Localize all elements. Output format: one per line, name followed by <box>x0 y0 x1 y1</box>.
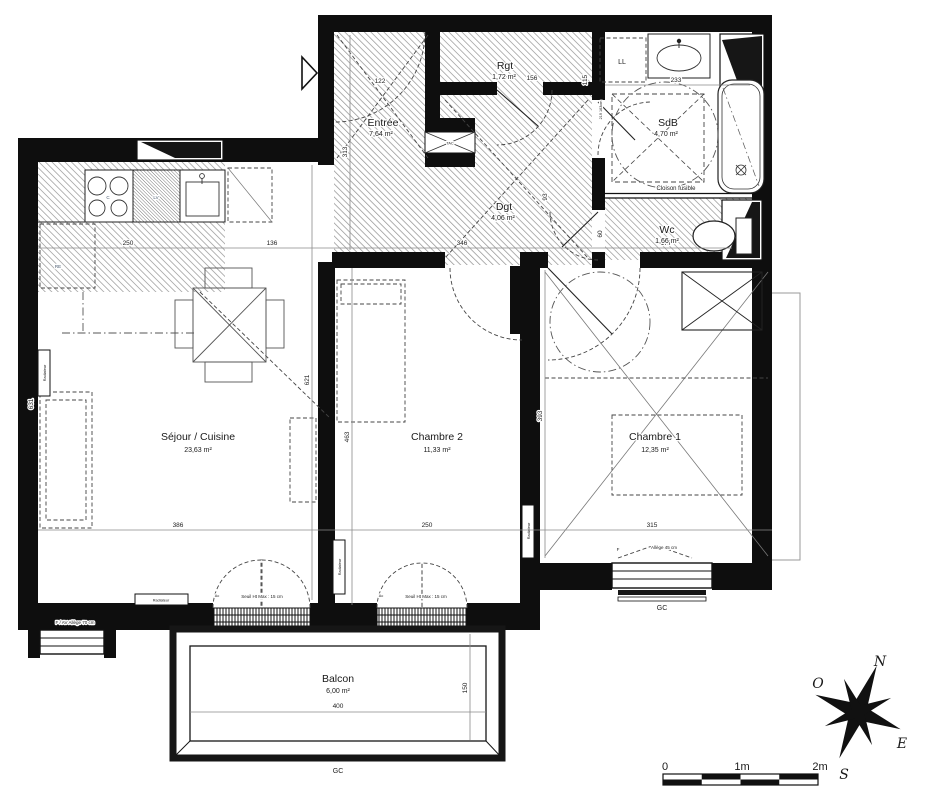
room-balcon-name: Balcon <box>322 673 354 685</box>
bathtub <box>718 80 764 193</box>
dim-sejour-height: 621 <box>304 374 311 385</box>
duct-top-left <box>137 140 223 160</box>
scale-1m: 1m <box>734 761 749 773</box>
balcony-door1-left <box>213 560 261 608</box>
dim-left-height: 631 <box>28 398 35 409</box>
dim-door-height: 93 <box>542 193 549 201</box>
dim-rgt-height: 115 <box>582 74 589 85</box>
room-chambre2-area: 11,33 m² <box>423 447 451 454</box>
fridge-label: RE <box>55 264 61 269</box>
dishwasher: LV <box>133 170 180 222</box>
scale-bar: 0 1m 2m <box>662 761 828 785</box>
kitchen-sink <box>180 170 225 222</box>
toilet <box>693 218 752 254</box>
room-chambre1-area: 12,35 m² <box>641 447 669 454</box>
f-marker: F <box>617 547 620 552</box>
radiator-left-wall: Radiateur <box>38 350 50 396</box>
room-entree-name: Entrée <box>368 117 399 129</box>
gc-label-chambre1: GC <box>657 605 668 612</box>
dim-entry-height: 313 <box>342 146 349 157</box>
room-dgt-area: 4,06 m² <box>491 215 515 222</box>
gc-label-balcon: GC <box>333 768 344 775</box>
sofa <box>40 392 92 528</box>
dishwasher-label: LV <box>153 195 158 200</box>
scale-2m: 2m <box>812 761 827 773</box>
bed-chambre2 <box>337 280 405 422</box>
neighbour-outline <box>772 293 800 560</box>
dim-entry-width: 346 <box>457 240 468 247</box>
dim-chambre1-width: 315 <box>647 522 658 529</box>
cooktop: C <box>85 170 133 222</box>
radiator-label: Radiateur <box>153 599 170 603</box>
room-sdb-name: SdB <box>658 117 678 129</box>
washing-machine: LL <box>600 38 646 82</box>
tac-label: TAC <box>446 142 454 146</box>
compass-east: E <box>896 736 907 752</box>
window-sejour <box>40 630 104 654</box>
allege45-label: Allège 45 cm <box>651 545 677 550</box>
dim-gap: 136 <box>267 240 278 247</box>
room-sejour-area: 23,63 m² <box>184 447 212 454</box>
dim-chambre2-height: 463 <box>344 431 351 442</box>
seuil-label-2: Seuil Ht Max : 15 cm <box>405 594 447 599</box>
room-entree-area: 7,64 m² <box>369 131 393 138</box>
dim-balcon-width: 400 <box>333 703 344 710</box>
radiator-label: Radiateur <box>338 558 342 575</box>
radiator-bottom-left: Radiateur <box>135 594 188 605</box>
radiator-label: Radiateur <box>43 364 47 381</box>
room-sdb-area: 4,70 m² <box>654 131 678 138</box>
seuil-label-1: Seuil Ht Max : 15 cm <box>241 594 283 599</box>
floor-plan: TAC <box>0 0 928 800</box>
balcony-door1-right <box>262 560 310 608</box>
compass-west: O <box>812 676 824 692</box>
room-rgt-name: Rgt <box>497 60 513 72</box>
ac-marker: Ac <box>379 594 384 598</box>
washbasin <box>648 34 710 78</box>
furniture <box>40 268 768 556</box>
dim-sdb-width: 233 <box>671 77 682 84</box>
dim-niche: 219 163cm <box>599 101 603 120</box>
room-wc-name: Wc <box>659 224 674 236</box>
window-fav-label: F / AV Allège 70 cm <box>56 620 95 625</box>
washing-machine-label: LL <box>618 59 626 66</box>
room-dgt-name: Dgt <box>496 201 512 213</box>
room-sejour-name: Séjour / Cuisine <box>161 431 235 443</box>
dim-kitchen-width: 250 <box>123 240 134 247</box>
room-balcon-area: 6,00 m² <box>326 688 350 695</box>
scale-0: 0 <box>662 761 668 773</box>
wardrobe-chambre1 <box>682 272 762 330</box>
balcony-door2-left <box>377 563 422 608</box>
window-chambre1 <box>612 563 712 601</box>
dim-rgt-width: 156 <box>527 75 538 82</box>
chambre2-door-leaf <box>510 266 522 334</box>
tall-cabinet <box>228 168 272 222</box>
dim-sejour-width: 386 <box>173 522 184 529</box>
radiator-divider: Radiateur <box>333 540 345 594</box>
room-chambre2-name: Chambre 2 <box>411 431 463 443</box>
evolutive-shower-zone <box>612 94 704 182</box>
room-chambre1-name: Chambre 1 <box>629 431 681 443</box>
cloison-fusible-label: Cloison fusible <box>656 186 696 192</box>
dim-entry-top: 122 <box>375 78 386 85</box>
balcony-door2-right <box>422 563 467 608</box>
bed-chambre1 <box>545 272 768 556</box>
floor-plan-page: TAC <box>0 0 928 800</box>
dim-chambre2-width: 250 <box>422 522 433 529</box>
ac-marker: Ac <box>215 594 220 598</box>
room-rgt-area: 1,72 m² <box>492 74 516 81</box>
radiator-label: Radiateur <box>527 522 531 539</box>
room-wc-area: 1,66 m² <box>655 238 679 245</box>
radiators: Radiateur Radiateur Radiateur Radiateur <box>38 350 534 605</box>
dim-wc-height: 60 <box>597 230 604 238</box>
entrance-arrow <box>302 57 317 89</box>
dim-balcon-depth: 150 <box>462 682 469 693</box>
compass-south: S <box>839 767 849 783</box>
compass-north: N <box>873 654 887 670</box>
radiator-chambre2: Radiateur <box>522 505 534 558</box>
dim-chambre1-height: 393 <box>537 410 544 421</box>
